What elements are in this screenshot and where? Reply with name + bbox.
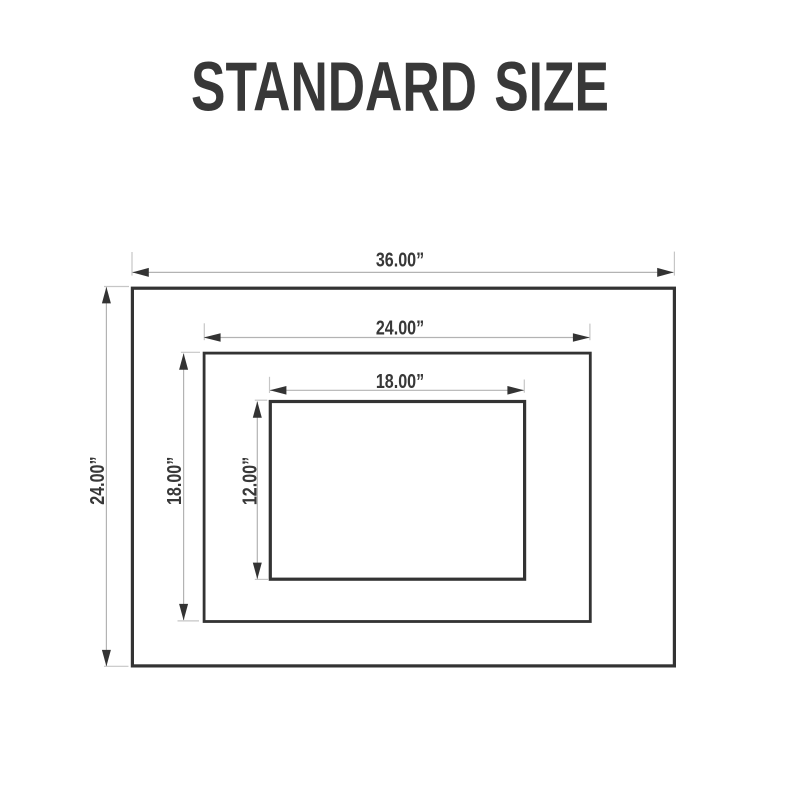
- svg-text:18.00”: 18.00”: [376, 370, 424, 393]
- svg-text:STANDARD SIZE: STANDARD SIZE: [191, 48, 609, 126]
- svg-text:24.00”: 24.00”: [376, 316, 424, 339]
- svg-text:36.00”: 36.00”: [376, 249, 424, 272]
- svg-text:12.00”: 12.00”: [238, 457, 261, 505]
- svg-text:24.00”: 24.00”: [86, 456, 109, 504]
- svg-text:18.00”: 18.00”: [163, 457, 186, 505]
